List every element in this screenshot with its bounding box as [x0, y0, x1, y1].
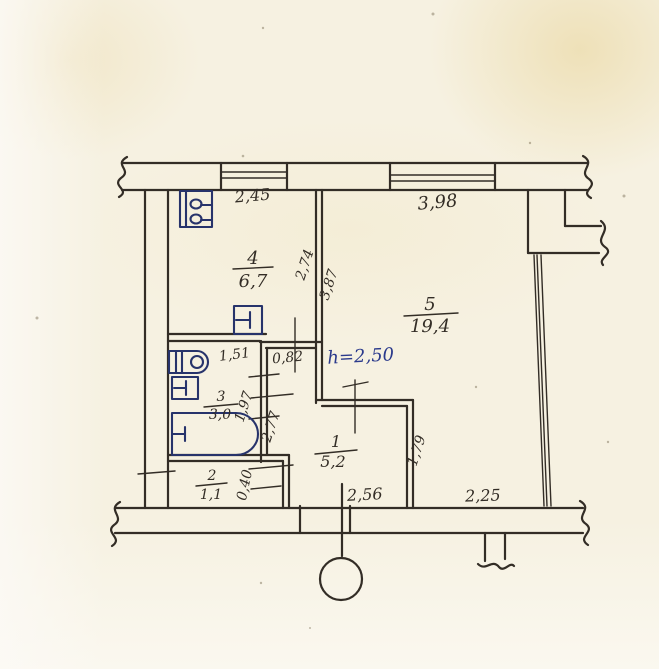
fraction-line [233, 267, 273, 269]
dim-duct-width: 0,40 [234, 468, 256, 502]
dim-room5-lower-depth: 1,79 [405, 433, 430, 468]
dim-niche-width: 0,82 [271, 349, 304, 368]
wall-right-top [528, 190, 608, 265]
room-5-label: 5 19,4 [404, 294, 458, 337]
wall-bottom [111, 501, 589, 546]
partition-corridor-left [261, 341, 267, 462]
wall-break-icon [601, 221, 608, 265]
room-area: 19,4 [410, 316, 450, 337]
svg-text:h=2,50: h=2,50 [327, 344, 395, 368]
room-area: 3,0 [209, 407, 231, 423]
stove-icon [180, 191, 212, 227]
room-4-label: 4 6,7 [233, 248, 273, 292]
room-number: 5 [424, 294, 435, 315]
room-2-label: 2 1,1 [196, 468, 227, 503]
dim-room4-depth: 2,74 [292, 247, 317, 283]
partition-right-neighbour [534, 255, 551, 506]
wall-stub-bottom [478, 533, 514, 569]
room-1-label: 1 5,2 [315, 432, 357, 471]
room-area: 6,7 [239, 271, 268, 292]
boiler-icon [172, 377, 198, 399]
room-number: 3 [217, 389, 226, 405]
floor-plan-drawing: 4 6,7 5 19,4 3 3,0 2 1,1 1 5,2 h=2,50 2 [0, 0, 659, 669]
dim-corridor-width: 2,56 [345, 484, 383, 505]
ceiling-height-note: h=2,50 [327, 344, 395, 368]
room-number: 2 [207, 468, 217, 484]
room-number: 4 [246, 248, 258, 269]
scanned-floor-plan: 4 6,7 5 19,4 3 3,0 2 1,1 1 5,2 h=2,50 2 [0, 0, 659, 669]
dim-bath-width: 1,51 [218, 345, 251, 365]
wall-break-icon [478, 564, 514, 569]
kitchen-sink-icon [234, 306, 262, 334]
dim-room4-width: 2,45 [233, 185, 271, 207]
dim-room5-lower-width: 2,25 [464, 485, 501, 505]
window-2 [390, 163, 495, 190]
dim-corridor-depth: 2,77 [258, 409, 283, 445]
room-area: 5,2 [320, 452, 345, 471]
dim-room5-width: 3,98 [417, 190, 459, 214]
room-number: 1 [331, 432, 341, 451]
dim-room5-depth: 3,87 [317, 267, 342, 302]
partition-duct [283, 455, 289, 508]
room-area: 1,1 [200, 487, 222, 503]
entrance-circle-icon [320, 558, 362, 600]
washbasin-icon [169, 351, 208, 373]
